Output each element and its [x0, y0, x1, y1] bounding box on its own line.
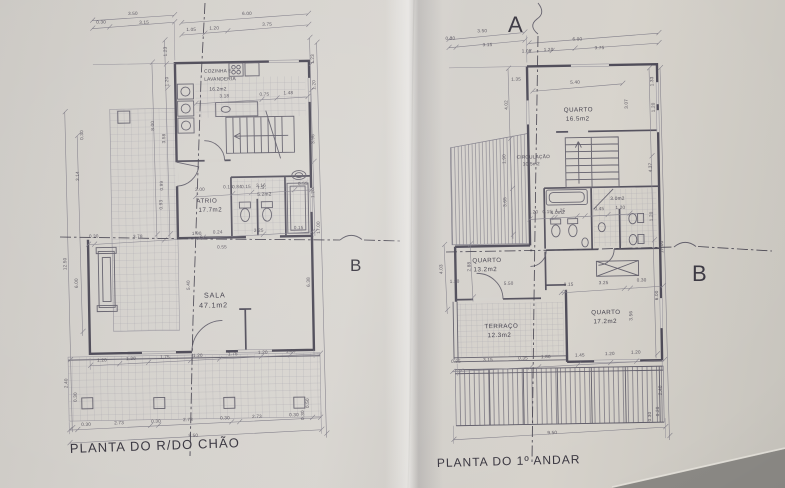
- dim-label: 0.30: [220, 415, 230, 420]
- dim-label: 3.07: [624, 99, 629, 109]
- dim-label: 9.50: [547, 430, 557, 435]
- dim-label: 3.96: [310, 134, 315, 144]
- first-floor-plan: 3.50 0.30 3.15 6.00 1.05 1.20 3.75 5.40 …: [434, 25, 672, 444]
- dim-label: 0.15: [564, 282, 574, 287]
- dim-label: 17.00: [316, 221, 321, 234]
- dim-label: 2.40: [658, 385, 663, 395]
- stairs-ff: [565, 137, 619, 188]
- dim-label: 1.20: [528, 209, 538, 214]
- room-area-bathroom1: 4.0m2: [550, 210, 565, 216]
- dim-label: 3.25: [599, 280, 609, 285]
- table-shadow: [612, 449, 785, 488]
- dim-label: 2.88: [466, 261, 471, 271]
- stairs: [226, 110, 295, 159]
- wall-stub: [239, 309, 252, 351]
- dim-label: 1.35: [511, 77, 521, 82]
- plan-title-first: PLANTA DO 1º ANDAR: [437, 452, 581, 470]
- pergola-slats: [455, 366, 664, 426]
- dim-label: 3.15: [139, 20, 149, 25]
- dim-label: 1.23: [163, 46, 168, 56]
- dim-label: 3.58: [161, 133, 166, 143]
- dim-label: 0.20: [655, 406, 660, 416]
- dim-label: 1.20: [605, 351, 615, 356]
- dim-label: 1.20: [311, 80, 316, 90]
- dim-label: 5.40: [186, 280, 191, 290]
- dim-label: 1.20: [193, 353, 203, 358]
- room-label-bedroom1: QUARTO: [564, 106, 593, 114]
- dim-label: 1.45: [575, 352, 585, 357]
- dim-label: 1.20: [631, 350, 641, 355]
- dim-label: 6.00: [572, 36, 582, 41]
- dim-label: 5.40: [570, 80, 580, 85]
- dim-label: 0.30: [300, 410, 305, 420]
- dim-label: 6.38: [306, 277, 311, 287]
- room-label-terrace: TERRAÇO: [484, 323, 518, 331]
- dim-label: 0.35: [518, 355, 528, 360]
- dim-label: 0.15: [241, 184, 251, 189]
- dim-label: 4.02: [504, 100, 509, 110]
- dim-label: 3.18: [219, 93, 229, 98]
- dim-label: 2.73: [114, 420, 124, 425]
- room-area-bedroom3: 17.2m2: [593, 318, 617, 325]
- dim-label: 0.30: [647, 411, 652, 421]
- dim-label: 0.30: [637, 277, 647, 282]
- dim-label: 1.20: [97, 357, 107, 362]
- dim-label: 3.56: [628, 311, 633, 321]
- room-label-living: SALA: [204, 290, 226, 299]
- dim-label: 3.65: [502, 197, 507, 207]
- dim-label: 0.35: [451, 359, 461, 364]
- room-area-bedroom1: 16.5m2: [566, 115, 590, 122]
- section-line-b-bump: [340, 235, 362, 240]
- bathroom-tiles-ff: [593, 188, 657, 246]
- dim-label: 3.15: [483, 42, 493, 47]
- dim-label: 1.20: [164, 76, 169, 86]
- dim-label: 0.24: [213, 229, 223, 234]
- section-line-b-bump-right: [674, 242, 696, 247]
- dim-label: 1.33: [649, 76, 654, 86]
- section-marker-b-right: B: [692, 261, 707, 286]
- room-label-wc: I.S.: [258, 185, 266, 191]
- plan-title-ground: PLANTA DO R/DO CHÃO: [70, 435, 241, 456]
- dim-label: 6.00: [242, 11, 252, 16]
- dim-label: 0.30: [73, 392, 78, 402]
- dim-label: 1.20: [258, 350, 268, 355]
- patio-tiles: [110, 108, 180, 331]
- dim-label: 1.80: [541, 354, 551, 359]
- dim-label: 1.30: [450, 279, 460, 284]
- dim-label: 6.00: [74, 278, 79, 288]
- dim-label: 0.30: [79, 130, 84, 140]
- dim-label: 1.23: [310, 54, 315, 64]
- dim-label: 1.20: [310, 188, 315, 198]
- dim-label: 0.50: [305, 398, 310, 408]
- dim-label: 1.05: [186, 27, 196, 32]
- floor-plan-photo: 3.50 0.30 3.15 6.00 1.05 1.20 3.75 3.18 …: [0, 0, 785, 488]
- dim-label: 2.00: [195, 187, 205, 192]
- dim-label: 3.75: [262, 22, 272, 27]
- dim-label: 0.15: [294, 225, 304, 230]
- room-label-kitchen: COZINHA E: [204, 68, 232, 74]
- dim-label: 17.00: [659, 240, 664, 253]
- wardrobe: [596, 261, 638, 277]
- room-area-wc: 5.2m2: [257, 192, 272, 198]
- dim-label: 1.48: [283, 90, 293, 95]
- dim-label: 1.20: [209, 25, 219, 30]
- dim-label: 1.20: [651, 102, 656, 112]
- dim-label: 0.55: [217, 244, 227, 249]
- dim-label: 4.37: [648, 162, 653, 172]
- dim-label: 0.99: [159, 180, 164, 190]
- dim-label: 3.50: [477, 28, 487, 33]
- dim-label: 3.50: [128, 11, 138, 16]
- room-label-bedroom3: QUARTO: [591, 309, 620, 317]
- dim-label: 1.90: [192, 231, 202, 236]
- dim-label: 0.30: [81, 422, 91, 427]
- room-area-kitchen: 16.2m2: [209, 86, 226, 92]
- dim-label: 2.40: [63, 378, 68, 388]
- room-area-circulation: 10.5m2: [523, 161, 540, 167]
- room-label-atrium: ATRIO: [196, 198, 217, 205]
- room-area-terrace: 12.3m2: [488, 332, 512, 339]
- terrace-band-tiles: [68, 353, 321, 421]
- dim-label: 0.30: [445, 36, 455, 41]
- sheet-seam: [408, 0, 414, 488]
- dim-label: 1.20: [544, 47, 554, 52]
- dim-label: 1.05: [522, 48, 532, 53]
- section-line-a-squiggle: [533, 3, 542, 34]
- dim-label: 1.90: [501, 154, 506, 164]
- dim-label: 0.30: [151, 419, 161, 424]
- dim-label: 0.93: [158, 199, 163, 209]
- dim-label: 1.20: [286, 348, 296, 353]
- room-area-bathroom2: 3.0m2: [610, 196, 625, 202]
- section-line-b-left-tail: [364, 240, 400, 241]
- dim-label: 0.55: [298, 181, 308, 186]
- section-line-b-right-tail: [698, 247, 772, 252]
- dim-label: 0.45: [594, 206, 604, 211]
- dim-label: 2.73: [183, 417, 193, 422]
- dim-label: 3.15: [483, 357, 493, 362]
- dim-label: 0.30: [96, 19, 106, 24]
- room-area-atrium: 17.7m2: [198, 206, 222, 213]
- dim-label: 4.03: [438, 264, 443, 274]
- room-area-bedroom2: 13.2m2: [473, 266, 497, 273]
- section-marker-a: A: [508, 12, 523, 37]
- plans-drawing: 3.50 0.30 3.15 6.00 1.05 1.20 3.75 3.18 …: [0, 0, 785, 488]
- dim-label: 1.75: [228, 351, 238, 356]
- dim-label: 3.75: [595, 45, 605, 50]
- dim-label: 1.20: [615, 205, 625, 210]
- room-label-bedroom2: QUARTO: [472, 257, 501, 265]
- dim-label: 1.75: [160, 354, 170, 359]
- dim-label: 0.30: [289, 412, 299, 417]
- section-marker-b-left: B: [350, 256, 361, 275]
- ground-floor-plan: 3.50 0.30 3.15 6.00 1.05 1.20 3.75 3.18 …: [57, 8, 330, 446]
- room-area-living: 47.1m2: [199, 300, 228, 310]
- dim-label: 1.20: [649, 211, 654, 221]
- dim-label: 6.00: [654, 290, 659, 300]
- dim-label: 2.73: [252, 414, 262, 419]
- dim-label: 3.25: [254, 228, 264, 233]
- dim-label: 5.50: [504, 281, 514, 286]
- dim-label: 8.00: [150, 121, 155, 131]
- dim-label: 3.14: [75, 171, 80, 181]
- dim-label: 0.30: [89, 234, 99, 239]
- dim-label: 1.20: [126, 356, 136, 361]
- dim-label: 12.50: [62, 257, 67, 270]
- dim-label: 0.75: [259, 92, 269, 97]
- room-label-kitchen2: LAVANDERIA: [204, 76, 236, 83]
- roof-hatch: [450, 133, 530, 244]
